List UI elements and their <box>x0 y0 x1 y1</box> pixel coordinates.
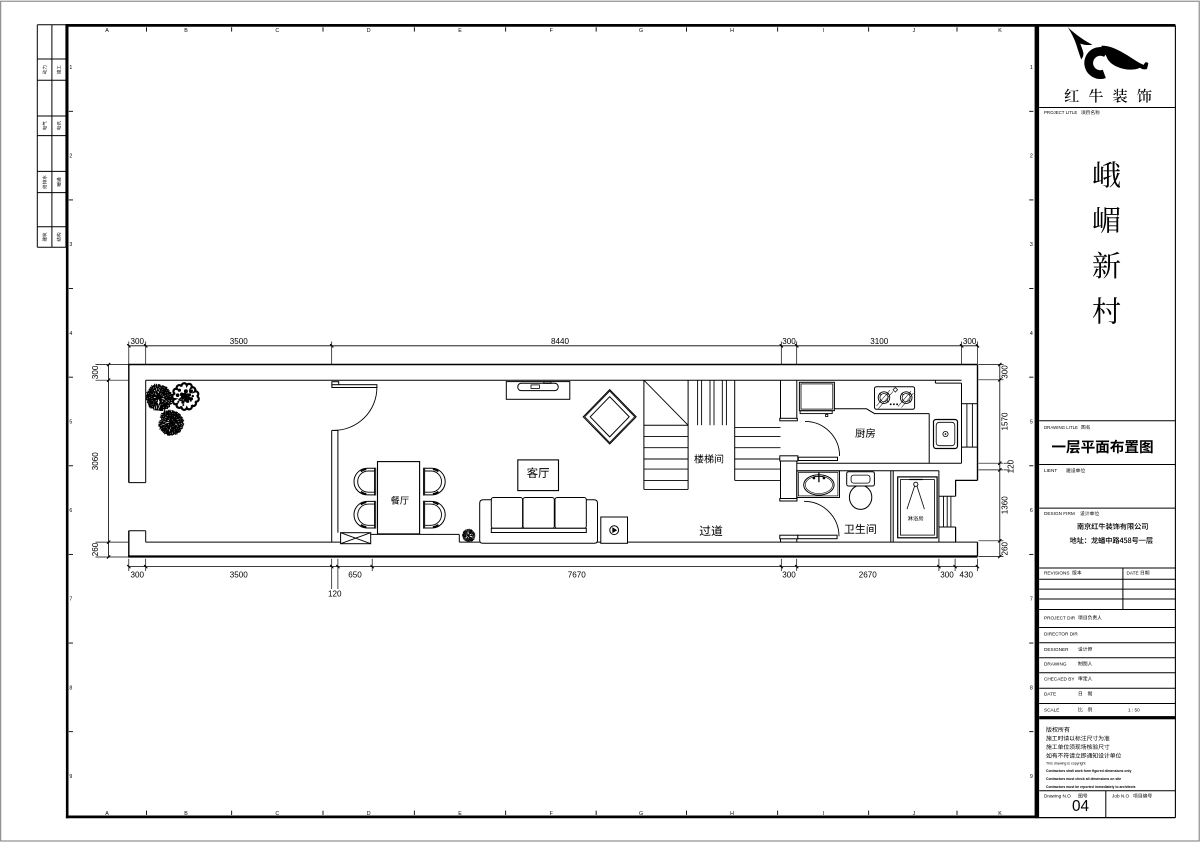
svg-text:300: 300 <box>1001 365 1010 379</box>
svg-text:5: 5 <box>69 419 72 425</box>
svg-text:300: 300 <box>131 337 145 346</box>
svg-text:3500: 3500 <box>230 570 249 579</box>
svg-text:3060: 3060 <box>91 452 100 471</box>
svg-text:REVISIONS: REVISIONS <box>1044 570 1070 575</box>
svg-text:B: B <box>184 811 188 817</box>
svg-text:DESIGNER: DESIGNER <box>1044 647 1069 652</box>
svg-text:DATE: DATE <box>1044 691 1056 696</box>
svg-text:D: D <box>367 28 371 34</box>
svg-text:1: 1 <box>69 65 72 71</box>
svg-text:LIENT: LIENT <box>1044 468 1057 473</box>
svg-text:I: I <box>823 811 824 817</box>
svg-text:6: 6 <box>1030 508 1033 514</box>
svg-text:120: 120 <box>328 589 342 598</box>
svg-text:3100: 3100 <box>870 337 889 346</box>
svg-text:1 : 50: 1 : 50 <box>1128 707 1140 712</box>
svg-text:3500: 3500 <box>230 337 249 346</box>
svg-text:9: 9 <box>1030 774 1033 780</box>
svg-text:J: J <box>913 28 916 34</box>
svg-text:Drawing N.O: Drawing N.O <box>1044 794 1071 799</box>
svg-text:120: 120 <box>1007 459 1016 473</box>
svg-text:300: 300 <box>131 570 145 579</box>
svg-text:C: C <box>275 811 279 817</box>
svg-text:7: 7 <box>1030 597 1033 603</box>
svg-text:SCALE: SCALE <box>1044 707 1059 712</box>
svg-text:6: 6 <box>69 508 72 514</box>
svg-text:2: 2 <box>1030 154 1033 160</box>
svg-text:650: 650 <box>348 570 362 579</box>
svg-text:DATE: DATE <box>1127 570 1139 575</box>
svg-text:2: 2 <box>69 154 72 160</box>
svg-text:PROJECT DIR: PROJECT DIR <box>1044 615 1076 620</box>
svg-text:C: C <box>275 28 279 34</box>
svg-text:300: 300 <box>782 570 796 579</box>
svg-text:300: 300 <box>963 337 977 346</box>
svg-text:300: 300 <box>782 337 796 346</box>
svg-text:H: H <box>730 811 734 817</box>
svg-text:Job N.O: Job N.O <box>1112 794 1130 799</box>
svg-text:300: 300 <box>91 365 100 379</box>
svg-text:1360: 1360 <box>1001 496 1010 515</box>
svg-text:I: I <box>823 28 824 34</box>
svg-text:DRAWING LITLE: DRAWING LITLE <box>1044 425 1078 430</box>
svg-text:04: 04 <box>1072 798 1090 815</box>
svg-text:Contractors must be reported i: Contractors must be reported immediately… <box>1046 785 1136 789</box>
svg-text:260: 260 <box>91 542 100 556</box>
svg-text:DESIGN FIRM: DESIGN FIRM <box>1044 511 1075 516</box>
svg-text:8440: 8440 <box>551 337 570 346</box>
svg-text:7: 7 <box>69 597 72 603</box>
svg-text:4: 4 <box>1030 331 1033 337</box>
svg-text:300: 300 <box>940 570 954 579</box>
svg-text:2670: 2670 <box>859 570 878 579</box>
svg-text:G: G <box>639 28 643 34</box>
svg-text:PROJECT LITLE: PROJECT LITLE <box>1044 110 1077 115</box>
svg-text:E: E <box>458 28 462 34</box>
svg-text:430: 430 <box>960 570 974 579</box>
svg-text:260: 260 <box>1001 541 1010 555</box>
svg-text:K: K <box>998 28 1002 34</box>
svg-text:DRAWING: DRAWING <box>1044 661 1067 666</box>
svg-text:Contractors shall work form fi: Contractors shall work form figured dime… <box>1046 769 1131 773</box>
svg-text:H: H <box>730 28 734 34</box>
svg-text:D: D <box>367 811 371 817</box>
svg-text:1: 1 <box>1030 65 1033 71</box>
svg-text:3: 3 <box>69 242 72 248</box>
svg-text:8: 8 <box>1030 685 1033 691</box>
svg-text:4: 4 <box>69 331 72 337</box>
svg-text:E: E <box>458 811 462 817</box>
svg-text:1570: 1570 <box>1001 412 1010 431</box>
svg-text:9: 9 <box>69 774 72 780</box>
svg-text:Contractors must check all dim: Contractors must check all dimensions on… <box>1046 777 1121 781</box>
svg-text:DIRECTOR DIR: DIRECTOR DIR <box>1044 631 1078 636</box>
svg-text:8: 8 <box>69 685 72 691</box>
svg-text:7670: 7670 <box>568 570 587 579</box>
svg-text:CHECAED BY: CHECAED BY <box>1044 676 1075 681</box>
svg-text:K: K <box>998 811 1002 817</box>
svg-text:G: G <box>639 811 643 817</box>
svg-text:J: J <box>913 811 916 817</box>
svg-text:A: A <box>105 811 109 817</box>
svg-text:B: B <box>184 28 188 34</box>
svg-text:This drawing is copyright: This drawing is copyright <box>1046 762 1086 766</box>
svg-text:A: A <box>105 28 109 34</box>
svg-text:5: 5 <box>1030 419 1033 425</box>
svg-text:3: 3 <box>1030 242 1033 248</box>
